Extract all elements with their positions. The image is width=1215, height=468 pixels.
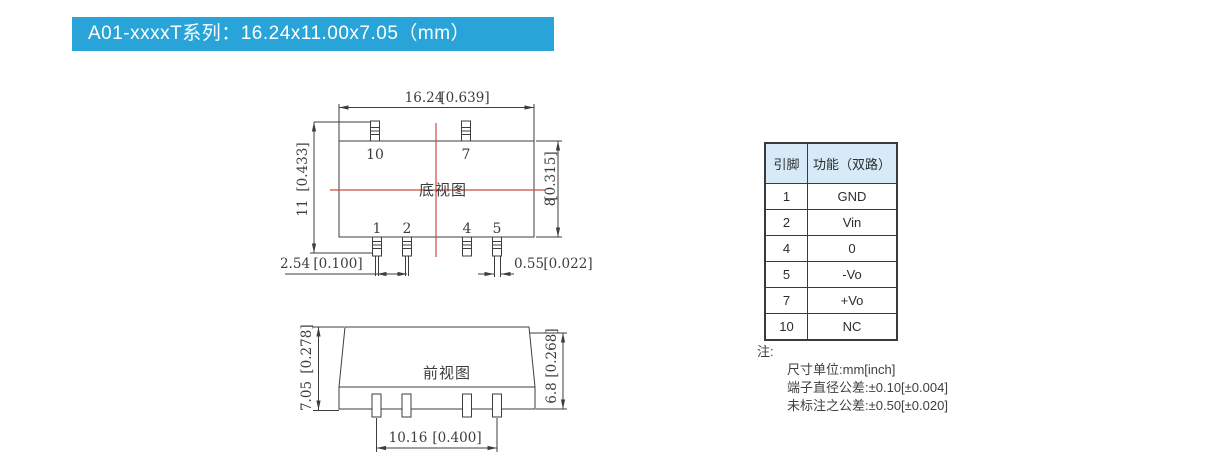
pin-number: 10: [765, 314, 808, 341]
pin-pad-1: [373, 237, 382, 276]
pin-label-1: 1: [373, 221, 382, 237]
pin-number: 4: [765, 236, 808, 262]
pin-label-7: 7: [462, 147, 471, 163]
pin-number: 2: [765, 210, 808, 236]
dim-body-height-in: [0.315]: [543, 151, 559, 200]
table-row: 1 GND: [765, 184, 897, 210]
dim-pin-width-in: [0.022]: [543, 256, 592, 272]
dim-overall-height-in: [0.433]: [295, 142, 311, 191]
dim-overall-height: [310, 122, 372, 253]
pin-function: -Vo: [808, 262, 898, 288]
dim-overall-height-mm: 11: [295, 199, 311, 216]
dim-front-pin-span-in: [0.400]: [432, 430, 481, 446]
pin-number: 5: [765, 262, 808, 288]
pin-function: GND: [808, 184, 898, 210]
table-row: 4 0: [765, 236, 897, 262]
table-row: 7 +Vo: [765, 288, 897, 314]
dim-front-body-height-mm: 6.8: [544, 382, 560, 403]
dim-front-body-height-in: [0.268]: [544, 328, 560, 377]
pin-pad-2: [403, 237, 412, 276]
table-row: 2 Vin: [765, 210, 897, 236]
dim-front-overall-height-in: [0.278]: [299, 324, 315, 373]
dim-width-in: [0.639]: [440, 90, 489, 106]
pin-function: +Vo: [808, 288, 898, 314]
datasheet-page: A01-xxxxT系列：16.24x11.00x7.05（mm）: [0, 0, 1215, 468]
front-pin-1: [372, 394, 381, 417]
front-view-label: 前视图: [423, 364, 471, 382]
table-header-function: 功能（双路）: [808, 143, 898, 184]
note-line: 未标注之公差:±0.50[±0.020]: [787, 397, 948, 415]
dim-pin-width-mm: 0.55: [514, 256, 544, 272]
pin-pad-4: [463, 237, 472, 256]
dim-pin-pitch-in: [0.100]: [313, 256, 362, 272]
pin-pad-5: [493, 237, 502, 277]
table-row: 5 -Vo: [765, 262, 897, 288]
front-pin-4: [463, 394, 472, 417]
pin-function: Vin: [808, 210, 898, 236]
pin-pad-7: [462, 121, 471, 141]
pin-number: 1: [765, 184, 808, 210]
notes-title: 注:: [757, 341, 948, 360]
pin-function: NC: [808, 314, 898, 341]
pin-function: 0: [808, 236, 898, 262]
dim-body-height-mm: 8: [543, 198, 559, 207]
bottom-view-label: 底视图: [419, 181, 467, 199]
front-pin-2: [402, 394, 411, 417]
dim-pin-pitch-mm: 2.54: [280, 256, 310, 272]
table-row: 10 NC: [765, 314, 897, 341]
note-line: 尺寸单位:mm[inch]: [787, 361, 948, 379]
front-pin-5: [493, 394, 502, 417]
table-header-pin: 引脚: [765, 143, 808, 184]
pin-label-5: 5: [493, 221, 502, 237]
table-header-row: 引脚 功能（双路）: [765, 143, 897, 184]
pin-pad-10: [371, 121, 380, 141]
notes-block: 注: 尺寸单位:mm[inch] 端子直径公差:±0.10[±0.004] 未标…: [757, 341, 948, 415]
technical-drawings: 底视图 10 7 1 2 4 5 16.24 [0.639] [0.433] 1…: [0, 0, 700, 468]
pin-label-2: 2: [403, 221, 412, 237]
dim-front-pin-span-mm: 10.16: [389, 430, 428, 446]
dim-width-mm: 16.24: [405, 90, 444, 106]
note-line: 端子直径公差:±0.10[±0.004]: [787, 379, 948, 397]
pin-number: 7: [765, 288, 808, 314]
pin-label-10: 10: [366, 147, 384, 163]
pin-label-4: 4: [463, 221, 472, 237]
pin-function-table: 引脚 功能（双路） 1 GND 2 Vin 4 0 5 -Vo 7: [764, 142, 898, 341]
dim-front-overall-height-mm: 7.05: [299, 381, 315, 411]
